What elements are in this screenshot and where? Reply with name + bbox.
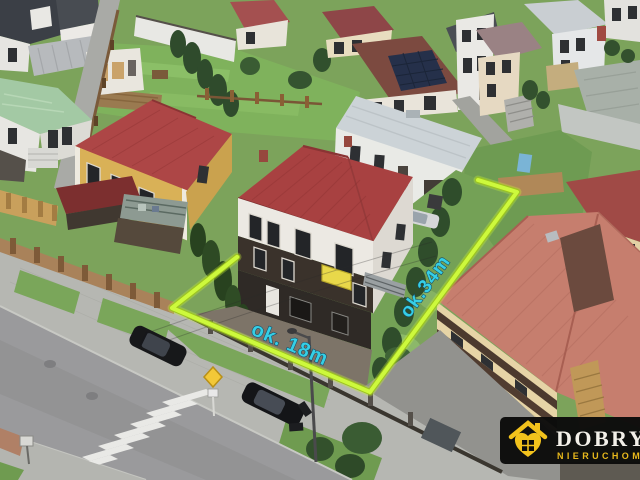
- aerial-property-photo: ok. 18m ok.34m DOBRY D NIERUCHOM: [0, 0, 640, 480]
- entrance-door: [266, 285, 279, 316]
- chimney: [259, 150, 268, 162]
- chimney-2: [344, 136, 352, 147]
- manhole-2: [86, 392, 98, 400]
- hanging-towel: [517, 153, 532, 173]
- picnic-table: [152, 70, 168, 79]
- manhole: [44, 360, 56, 368]
- bottom-right-ground: [560, 462, 640, 480]
- street-sign: [20, 436, 33, 446]
- bin: [427, 194, 443, 210]
- tree-crown: [342, 422, 382, 454]
- tan-shed: [546, 62, 580, 91]
- red-chimney: [597, 26, 606, 41]
- stacked-materials: [28, 148, 58, 168]
- brand-subtitle: NIERUCHOM: [557, 451, 640, 461]
- scene-canvas: ok. 18m ok.34m DOBRY D NIERUCHOM: [0, 0, 640, 480]
- watermark-banner: DOBRY D NIERUCHOM: [500, 417, 640, 464]
- roof-skylight: [406, 110, 420, 118]
- brand-title: DOBRY D: [556, 426, 640, 451]
